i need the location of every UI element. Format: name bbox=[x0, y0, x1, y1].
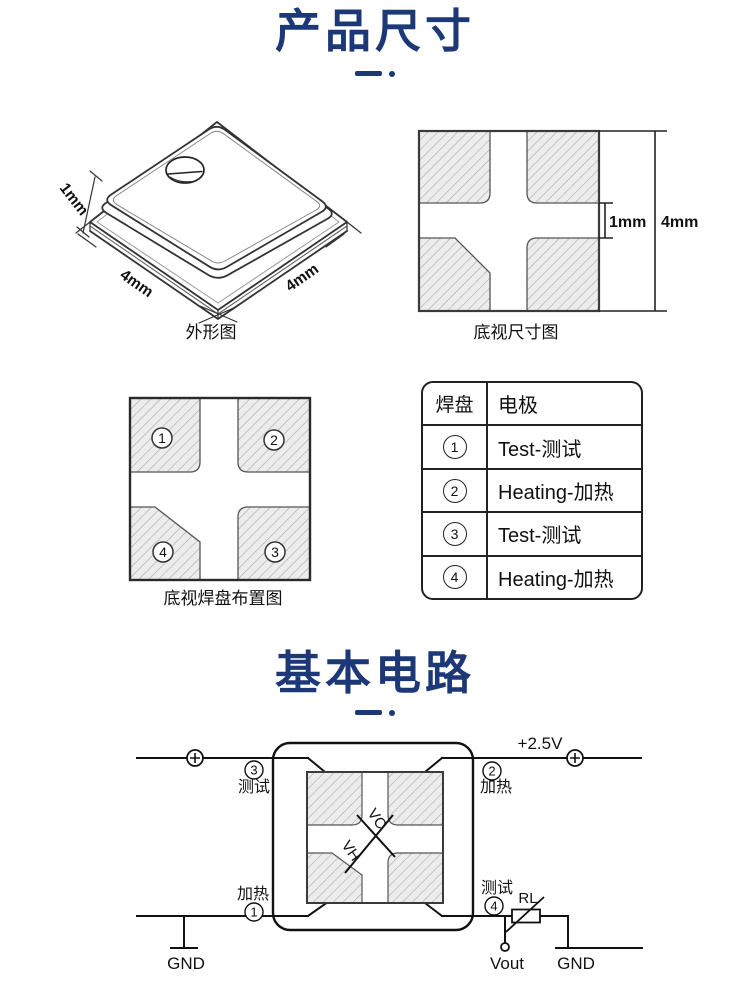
table-header-pad: 焊盘 bbox=[423, 383, 488, 424]
title-underline bbox=[0, 71, 750, 79]
bottom-view-dimension-figure: 1mm 4mm 底视尺寸图 bbox=[400, 110, 710, 345]
table-row: 1 Test-测试 bbox=[423, 424, 641, 467]
product-spec-page: 产品尺寸 bbox=[0, 0, 750, 985]
pad-number-1: 1 bbox=[158, 430, 166, 446]
table-row: 2 Heating-加热 bbox=[423, 468, 641, 511]
pin2-label: 加热 bbox=[480, 778, 512, 796]
pad-number-badge: 3 bbox=[443, 522, 467, 546]
dim-label-thickness: 1mm bbox=[56, 180, 92, 219]
vout-label: Vout bbox=[490, 954, 524, 973]
supply-terminal-left bbox=[187, 750, 203, 766]
pad-number-2: 2 bbox=[270, 432, 278, 448]
section-title-product-dimensions: 产品尺寸 bbox=[0, 6, 750, 57]
gnd-left-label: GND bbox=[167, 954, 205, 973]
dim-label-side: 4mm bbox=[661, 214, 698, 231]
pad-number-badge: 2 bbox=[443, 479, 467, 503]
pad-layout-figure: 1 2 3 4 底视焊盘布置图 bbox=[100, 380, 360, 612]
outline-figure-caption: 外形图 bbox=[186, 323, 237, 342]
table-row: 4 Heating-加热 bbox=[423, 555, 641, 598]
dim-label-gap: 1mm bbox=[609, 214, 646, 231]
bottom-view-caption: 底视尺寸图 bbox=[474, 323, 559, 342]
rl-label: RL bbox=[518, 890, 537, 907]
vout-terminal bbox=[501, 943, 509, 951]
underline-dash bbox=[355, 710, 382, 715]
pad-number-3: 3 bbox=[271, 544, 279, 560]
table-header-electrode: 电极 bbox=[488, 383, 641, 424]
pad-number-4: 4 bbox=[159, 544, 167, 560]
pad-layout-caption: 底视焊盘布置图 bbox=[164, 589, 283, 608]
electrode-cell: Heating-加热 bbox=[488, 557, 641, 598]
pad-number-badge: 4 bbox=[443, 565, 467, 589]
pad-electrode-table: 焊盘 电极 1 Test-测试 2 Heating-加热 3 Test-测试 4… bbox=[421, 381, 643, 600]
outline-drawing-figure: 1mm 4mm 4mm 外形图 bbox=[40, 110, 380, 345]
pad-number-badge: 1 bbox=[443, 435, 467, 459]
hole bbox=[166, 157, 204, 183]
electrode-cell: Test-测试 bbox=[488, 426, 641, 467]
gnd-right-label: GND bbox=[557, 954, 595, 973]
table-header-row: 焊盘 电极 bbox=[423, 383, 641, 424]
pin4-label: 测试 bbox=[481, 879, 513, 897]
pin4-number: 4 bbox=[490, 899, 497, 914]
pin1-number: 1 bbox=[250, 905, 257, 920]
pin3-number: 3 bbox=[250, 763, 257, 778]
pin2-number: 2 bbox=[488, 764, 495, 779]
table-row: 3 Test-测试 bbox=[423, 511, 641, 554]
supply-terminal-right bbox=[567, 750, 583, 766]
title-underline bbox=[0, 710, 750, 718]
pin1-label: 加热 bbox=[237, 885, 269, 903]
underline-dot bbox=[389, 710, 395, 716]
supply-voltage-label: +2.5V bbox=[518, 734, 564, 753]
electrode-cell: Test-测试 bbox=[488, 513, 641, 554]
underline-dot bbox=[389, 71, 395, 77]
pin3-label: 测试 bbox=[238, 778, 270, 796]
basic-circuit-figure: VC VH RL 3 2 1 4 +2.5V 测试 加热 加热 测试 GND V… bbox=[0, 730, 750, 985]
electrode-cell: Heating-加热 bbox=[488, 470, 641, 511]
underline-dash bbox=[355, 71, 382, 76]
section-title-basic-circuit: 基本电路 bbox=[0, 648, 750, 699]
